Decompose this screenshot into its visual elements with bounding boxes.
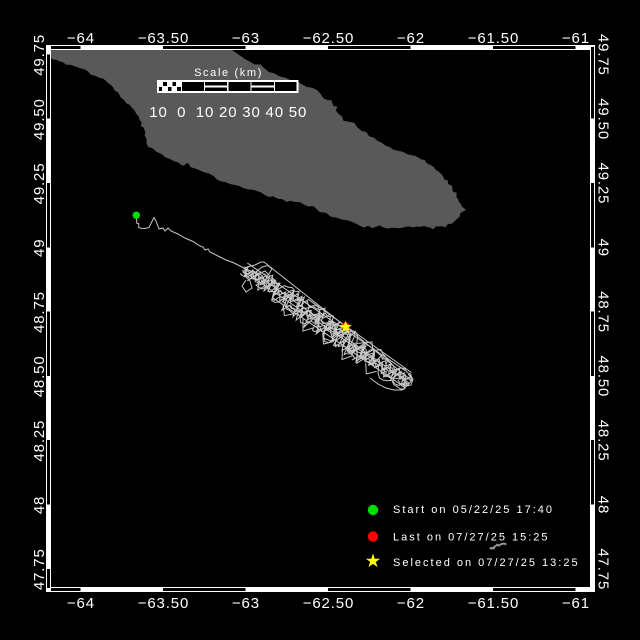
svg-text:49.50: 49.50 [31,98,48,140]
svg-text:−63: −63 [232,595,260,612]
svg-text:−63.50: −63.50 [138,595,189,612]
svg-text:−61.50: −61.50 [468,30,519,47]
svg-text:−64: −64 [67,30,95,47]
svg-text:48.75: 48.75 [595,291,612,333]
svg-text:−61: −61 [562,30,590,47]
svg-text:49.25: 49.25 [31,163,48,205]
svg-text:48.50: 48.50 [31,355,48,397]
svg-text:Last on 07/27/25 15:25: Last on 07/27/25 15:25 [393,532,550,544]
svg-text:49.25: 49.25 [595,163,612,205]
svg-text:−63.50: −63.50 [138,30,189,47]
svg-text:40: 40 [265,104,283,121]
svg-text:49.75: 49.75 [31,34,48,76]
svg-text:10: 10 [149,104,167,121]
svg-text:Selected on 07/27/25 13:25: Selected on 07/27/25 13:25 [393,557,580,569]
svg-text:48.25: 48.25 [595,420,612,462]
svg-text:49.75: 49.75 [595,34,612,76]
svg-text:49: 49 [595,239,612,257]
svg-text:−63: −63 [232,30,260,47]
svg-text:20: 20 [219,104,237,121]
svg-text:48.75: 48.75 [31,291,48,333]
svg-text:Start on 05/22/25 17:40: Start on 05/22/25 17:40 [393,504,554,516]
svg-text:−62.50: −62.50 [303,595,354,612]
svg-text:−62: −62 [397,30,425,47]
svg-text:47.75: 47.75 [31,548,48,590]
svg-text:30: 30 [242,104,260,121]
svg-text:−62: −62 [397,595,425,612]
svg-text:49.50: 49.50 [595,98,612,140]
svg-text:47.75: 47.75 [595,548,612,590]
svg-text:48.50: 48.50 [595,355,612,397]
svg-text:−64: −64 [67,595,95,612]
svg-text:49: 49 [31,239,48,257]
svg-text:−61.50: −61.50 [468,595,519,612]
svg-text:−61: −61 [562,595,590,612]
svg-text:48: 48 [31,496,48,514]
svg-text:50: 50 [289,104,307,121]
svg-text:48.25: 48.25 [31,420,48,462]
svg-text:10: 10 [196,104,214,121]
svg-text:0: 0 [177,104,186,121]
svg-text:Scale (km): Scale (km) [194,67,263,79]
svg-text:−62.50: −62.50 [303,30,354,47]
svg-text:48: 48 [595,496,612,514]
